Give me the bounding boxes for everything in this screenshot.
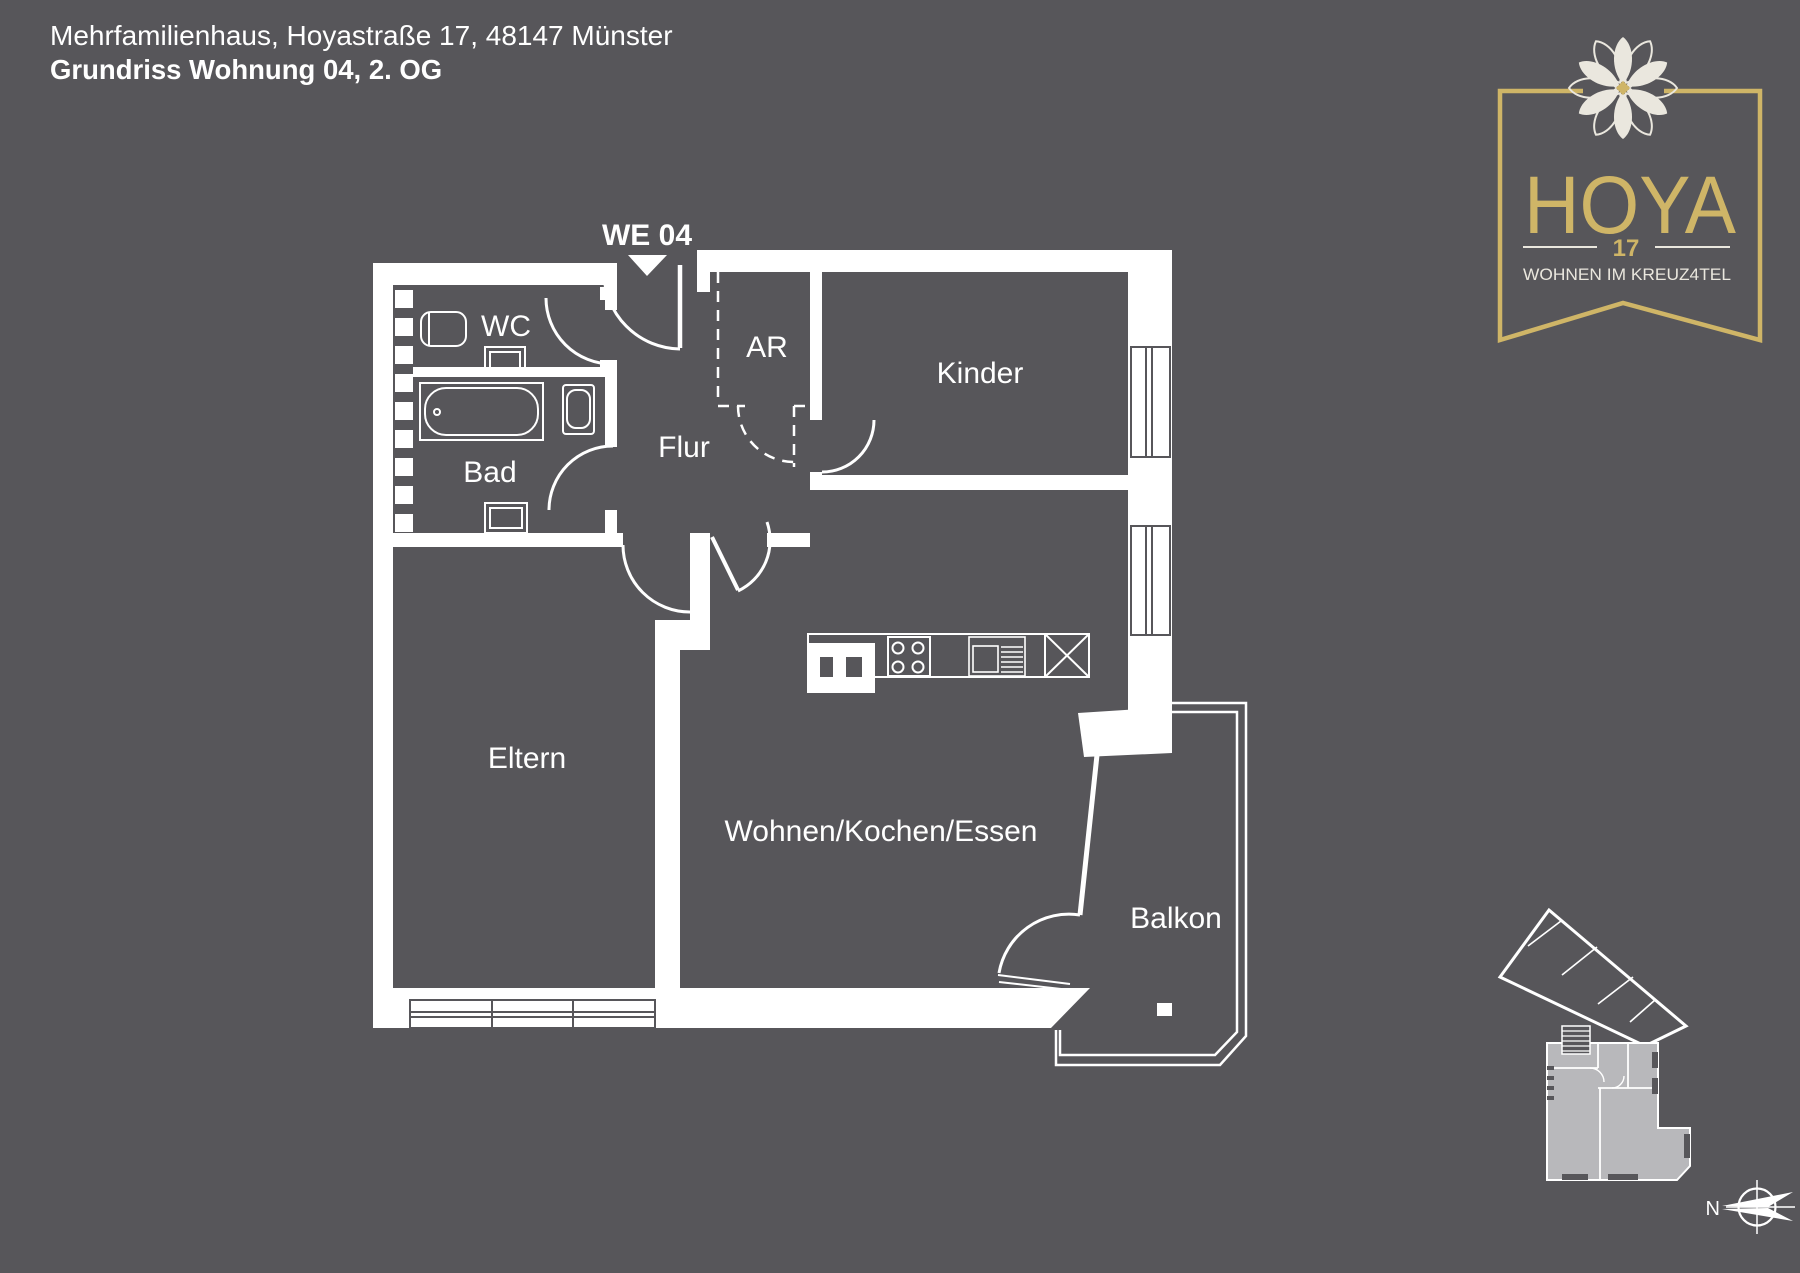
bathtub-icon [420, 383, 543, 440]
ar-dashed-partition [718, 272, 810, 467]
site-plan-wing [1500, 910, 1686, 1046]
floorplan-sheet: Mehrfamilienhaus, Hoyastraße 17, 48147 M… [0, 0, 1800, 1273]
room-label-kinder: Kinder [937, 357, 1024, 390]
header-address: Mehrfamilienhaus, Hoyastraße 17, 48147 M… [50, 20, 673, 51]
kitchen-sink-icon [808, 644, 874, 692]
site-plan-stairs [1562, 1026, 1590, 1054]
room-label-eltern: Eltern [488, 742, 566, 775]
room-label-bad: Bad [463, 456, 516, 489]
wall-flur-wohnen [767, 533, 810, 547]
room-label-flur: Flur [658, 431, 710, 464]
wall-flur-wohnen-stub [690, 533, 710, 623]
wall-flur-eltern [393, 533, 623, 547]
wall-balcony-pier [1078, 707, 1172, 757]
balcony-drain [1157, 1003, 1172, 1016]
shaft-hatch [395, 290, 413, 532]
wall-top-left [373, 263, 617, 285]
wall-left [373, 263, 393, 1028]
flower-icon [1569, 36, 1677, 139]
oven-icon [969, 637, 1025, 676]
kinder-door [822, 420, 874, 472]
wohnen-door [712, 522, 770, 591]
page-title: Grundriss Wohnung 04, 2. OG [50, 54, 442, 85]
room-label-wohnen: Wohnen/Kochen/Essen [725, 815, 1038, 848]
wall-right-pier-3 [1128, 636, 1172, 711]
room-label-ar: AR [746, 331, 788, 364]
logo-number: 17 [1613, 235, 1640, 262]
header: Mehrfamilienhaus, Hoyastraße 17, 48147 M… [50, 20, 673, 85]
room-labels: WC Bad Flur AR Kinder Eltern Wohnen/Koch… [463, 310, 1222, 935]
windows [410, 346, 1172, 1028]
washbasin-icon [563, 385, 594, 434]
wall-bad-right-b [605, 510, 617, 533]
bad-sink-icon [485, 503, 527, 533]
wall-top-right [697, 250, 1172, 272]
north-compass-icon: N [1706, 1180, 1795, 1234]
unit-marker-arrow-icon [628, 255, 667, 276]
window-eltern [410, 1000, 655, 1028]
kitchen-counter [808, 634, 1089, 692]
window-kinder [1128, 346, 1172, 458]
unit-marker-label: WE 04 [602, 219, 692, 252]
walls [373, 250, 1172, 1028]
logo-badge: HOYA 17 WOHNEN IM KREUZ4TEL [1500, 36, 1760, 340]
floorplan-canvas: Mehrfamilienhaus, Hoyastraße 17, 48147 M… [0, 0, 1800, 1273]
wall-kinder-bottom [822, 475, 1130, 490]
wall-step [655, 620, 710, 650]
entrance-right-jamb [697, 272, 710, 292]
north-label: N [1706, 1198, 1720, 1220]
wall-ar-right-stub [810, 472, 822, 490]
bad-door [549, 446, 613, 510]
window-wohnen [1128, 525, 1172, 636]
site-plan-unit-highlight [1547, 1043, 1690, 1180]
wall-bad-right-a [605, 377, 617, 447]
wall-right-pier-2 [1128, 458, 1172, 525]
wc-door [546, 298, 612, 364]
appliance-icon [1045, 634, 1089, 677]
wall-eltern-wohnen [655, 650, 680, 988]
toilet-icon [421, 312, 466, 346]
balcony-door [998, 755, 1097, 990]
room-label-wc: WC [481, 310, 531, 343]
wall-right-pier-1 [1128, 272, 1172, 346]
wall-ar-right [810, 272, 822, 420]
room-label-balkon: Balkon [1130, 902, 1222, 935]
cooktop-icon [888, 637, 930, 676]
site-plan [1500, 910, 1690, 1180]
eltern-door [623, 545, 690, 612]
logo-tagline: WOHNEN IM KREUZ4TEL [1523, 265, 1731, 284]
